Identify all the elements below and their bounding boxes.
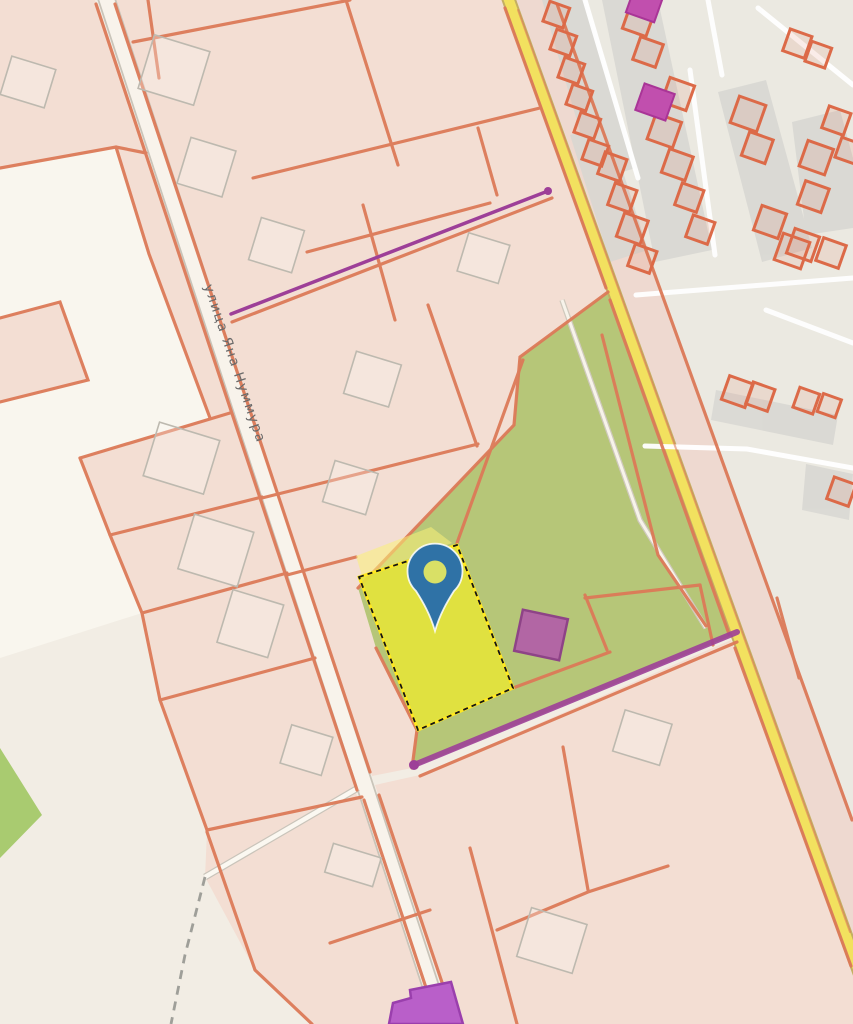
mauve-building — [514, 610, 568, 661]
powerline-node — [409, 760, 419, 770]
map-viewport[interactable]: улица Яна Нуммура — [0, 0, 853, 1024]
marker-hole — [424, 561, 447, 584]
map-canvas[interactable]: улица Яна Нуммура — [0, 0, 853, 1024]
powerline-node — [544, 187, 552, 195]
